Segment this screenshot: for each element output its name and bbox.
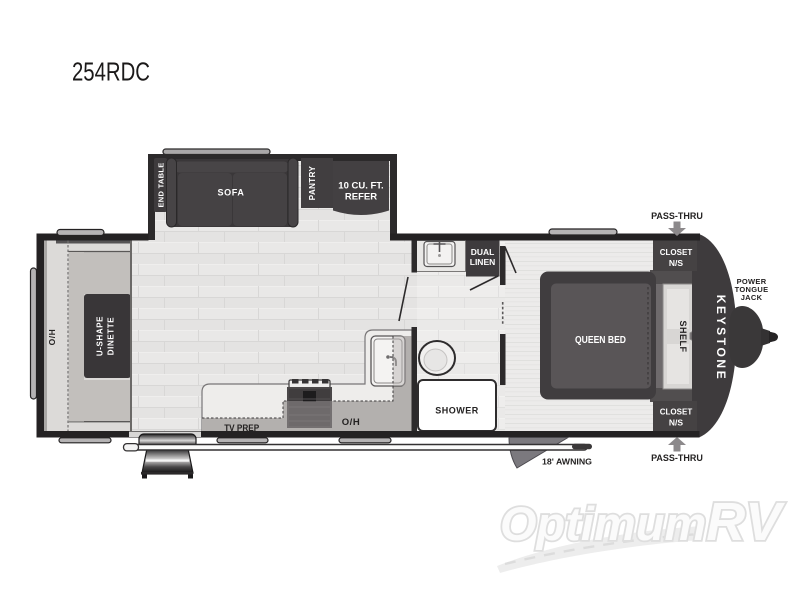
svg-text:JACK: JACK xyxy=(741,293,763,302)
svg-text:N/S: N/S xyxy=(669,418,684,428)
svg-text:10 CU. FT.: 10 CU. FT. xyxy=(338,181,383,192)
svg-text:REFER: REFER xyxy=(345,192,377,203)
svg-text:CLOSET: CLOSET xyxy=(660,407,693,417)
svg-text:PASS-THRU: PASS-THRU xyxy=(651,453,703,463)
svg-text:18' AWNING: 18' AWNING xyxy=(542,457,592,467)
svg-text:O/H: O/H xyxy=(342,417,360,428)
svg-text:254RDC: 254RDC xyxy=(72,57,150,87)
svg-text:PASS-THRU: PASS-THRU xyxy=(651,211,703,221)
svg-text:END TABLE: END TABLE xyxy=(157,162,166,207)
svg-text:SOFA: SOFA xyxy=(218,188,245,198)
svg-text:SHELF: SHELF xyxy=(678,320,688,352)
svg-text:KEYSTONE: KEYSTONE xyxy=(714,295,728,382)
svg-text:U-SHAPE: U-SHAPE xyxy=(96,316,105,356)
svg-text:N/S: N/S xyxy=(669,258,684,268)
svg-text:DUAL: DUAL xyxy=(471,247,495,257)
svg-text:PANTRY: PANTRY xyxy=(308,166,317,201)
svg-text:QUEEN BED: QUEEN BED xyxy=(575,335,626,346)
svg-text:DINETTE: DINETTE xyxy=(107,317,116,355)
svg-text:LINEN: LINEN xyxy=(470,257,496,267)
svg-text:SHOWER: SHOWER xyxy=(435,406,479,416)
svg-text:OptimumRV: OptimumRV xyxy=(500,492,785,552)
svg-text:O/H: O/H xyxy=(47,329,57,346)
svg-text:CLOSET: CLOSET xyxy=(660,247,693,257)
